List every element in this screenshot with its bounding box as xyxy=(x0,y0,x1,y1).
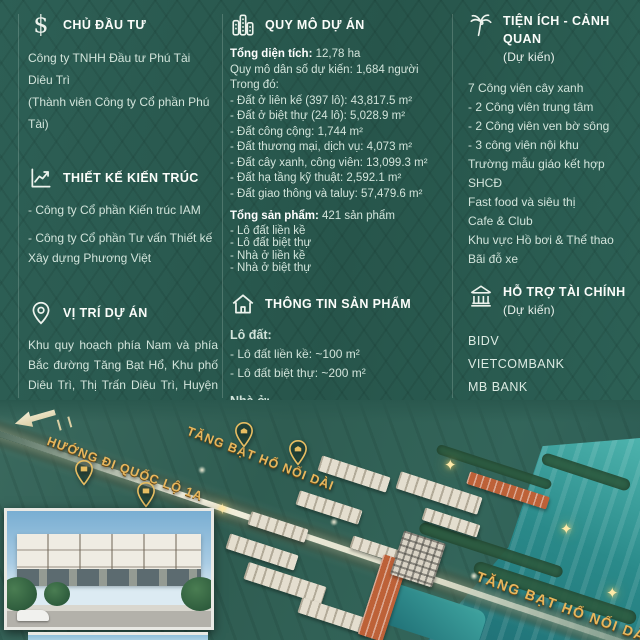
bank-item: VIETCOMBANK xyxy=(468,353,636,376)
map-pin-icon xyxy=(28,300,54,326)
product-land-item: - Lô đất liền kề: ~100 m² xyxy=(230,345,448,364)
road-label-tang-bat-ho-top: TĂNG BẠT HỔ NỐI DÀI xyxy=(185,424,336,493)
sparkle-icon: ✦ xyxy=(560,520,573,538)
map-pin-icon xyxy=(136,482,156,508)
bank-icon xyxy=(468,283,494,309)
including-label: Trong đó: xyxy=(230,78,448,94)
section-title: THIẾT KẾ KIẾN TRÚC xyxy=(63,171,199,185)
total-area-value: 12,78 ha xyxy=(312,48,360,60)
land-item: - Đất ở liên kế (397 lô): 43,817.5 m² xyxy=(230,94,448,110)
total-products-value: 421 sản phẩm xyxy=(319,210,395,222)
sparkle-icon: ✦ xyxy=(444,456,457,474)
land-item: - Đất công cộng: 1,744 m² xyxy=(230,125,448,141)
palm-tree-icon xyxy=(468,12,494,38)
section-title: THÔNG TIN SẢN PHẨM xyxy=(265,297,411,311)
design-item: - Công ty Cổ phần Kiến trúc IAM xyxy=(28,200,218,220)
land-item: - Đất cây xanh, công viên: 13,099.3 m² xyxy=(230,156,448,172)
total-products: Tổng sản phẩm: 421 sản phẩm xyxy=(230,209,448,225)
vertical-divider xyxy=(222,14,223,398)
photo-storefronts xyxy=(17,569,201,586)
bank-item: MB BANK xyxy=(468,376,636,399)
map-top-fade xyxy=(0,400,640,422)
amenity-item: - 2 Công viên trung tâm xyxy=(468,98,636,117)
map-building xyxy=(295,490,362,525)
design-item: - Công ty Cổ phần Tư vấn Thiết kế Xây dự… xyxy=(28,228,218,268)
sparkle-icon: ✦ xyxy=(216,500,229,518)
section-title: TIỆN ÍCH - CẢNH QUAN xyxy=(503,14,610,46)
investor-line: (Thành viên Công ty Cổ phần Phú Tài) xyxy=(28,91,218,135)
project-render-photo-partial xyxy=(28,632,208,640)
total-area-label: Tổng diện tích: xyxy=(230,48,312,60)
land-item: - Đất thương mại, dịch vụ: 4,073 m² xyxy=(230,140,448,156)
amenity-item: Khu vực Hồ bơi & Thể thao xyxy=(468,231,636,250)
bank-item: BIDV xyxy=(468,330,636,353)
product-type: - Nhà ở biệt thự xyxy=(230,262,448,275)
total-products-label: Tổng sản phẩm: xyxy=(230,210,319,222)
arrow-tick-marks xyxy=(57,416,73,430)
map-pin-icon xyxy=(234,422,254,448)
dollar-icon: $ xyxy=(28,12,54,38)
chart-icon xyxy=(28,165,54,191)
amenity-item: Fast food và siêu thị xyxy=(468,193,636,212)
section-location: VỊ TRÍ DỰ ÁN Khu quy hoạch phía Nam và p… xyxy=(28,300,218,415)
section-investor: $ CHỦ ĐẦU TƯ Công ty TNHH Đầu tư Phú Tài… xyxy=(28,12,218,135)
section-scale-head: QUY MÔ DỰ ÁN xyxy=(230,12,448,38)
map-pin-icon xyxy=(74,460,94,486)
sparkle-icon: ✦ xyxy=(606,584,619,602)
project-map: HƯỚNG ĐI QUỐC LỘ 1A TĂNG BẠT HỔ NỐI DÀI … xyxy=(0,400,640,640)
vertical-divider xyxy=(452,14,453,398)
section-title: CHỦ ĐẦU TƯ xyxy=(63,18,146,32)
land-label: Lô đất: xyxy=(230,326,448,345)
section-amenities-head: TIỆN ÍCH - CẢNH QUAN (Dự kiến) xyxy=(468,12,636,64)
population: Quy mô dân số dự kiến: 1,684 người xyxy=(230,63,448,79)
amenity-item: Cafe & Club xyxy=(468,212,636,231)
amenity-item: - 3 công viên nội khu xyxy=(468,136,636,155)
land-item: - Đất giao thông và taluy: 57,479.6 m² xyxy=(230,187,448,203)
product-type: - Lô đất biệt thự xyxy=(230,237,448,250)
land-item: - Đất ở biệt thự (24 lô): 5,028.9 m² xyxy=(230,109,448,125)
svg-text:$: $ xyxy=(33,12,48,38)
light-glow xyxy=(198,466,206,474)
amenity-item: Trường mẫu giáo kết hợp SHCĐ xyxy=(468,155,636,193)
investor-line: Công ty TNHH Đầu tư Phú Tài Diêu Trì xyxy=(28,47,218,91)
photo-tree xyxy=(44,582,70,606)
product-type: - Lô đất liền kề xyxy=(230,225,448,238)
column-right: TIỆN ÍCH - CẢNH QUAN (Dự kiến) 7 Công vi… xyxy=(468,12,636,445)
amenity-item: Bãi đỗ xe xyxy=(468,250,636,269)
section-product-info-head: THÔNG TIN SẢN PHẨM xyxy=(230,291,448,317)
section-design: THIẾT KẾ KIẾN TRÚC - Công ty Cổ phần Kiế… xyxy=(28,165,218,268)
section-title: HỖ TRỢ TÀI CHÍNH xyxy=(503,285,626,299)
section-title: QUY MÔ DỰ ÁN xyxy=(265,18,365,32)
land-item: - Đất hạ tầng kỹ thuật: 2,592.1 m² xyxy=(230,171,448,187)
map-pin-icon xyxy=(288,440,308,466)
section-title: VỊ TRÍ DỰ ÁN xyxy=(63,306,148,320)
house-icon xyxy=(230,291,256,317)
finance-subtitle: (Dự kiến) xyxy=(503,303,626,317)
product-type: - Nhà ở liền kề xyxy=(230,250,448,263)
vertical-divider xyxy=(18,14,19,398)
section-finance-head: HỖ TRỢ TÀI CHÍNH (Dự kiến) xyxy=(468,283,636,317)
product-land-item: - Lô đất biệt thự: ~200 m² xyxy=(230,364,448,383)
photo-car xyxy=(17,610,49,621)
project-render-photo xyxy=(4,508,214,630)
amenity-item: 7 Công viên cây xanh xyxy=(468,79,636,98)
light-glow xyxy=(330,518,338,526)
column-middle: QUY MÔ DỰ ÁN Tổng diện tích: 12,78 ha Qu… xyxy=(230,12,448,449)
amenity-item: - 2 Công viên ven bờ sông xyxy=(468,117,636,136)
buildings-icon xyxy=(230,12,256,38)
photo-tree xyxy=(181,577,214,611)
total-area: Tổng diện tích: 12,78 ha xyxy=(230,47,448,63)
infographic-root: $ CHỦ ĐẦU TƯ Công ty TNHH Đầu tư Phú Tài… xyxy=(0,0,640,640)
amenities-subtitle: (Dự kiến) xyxy=(503,50,636,64)
